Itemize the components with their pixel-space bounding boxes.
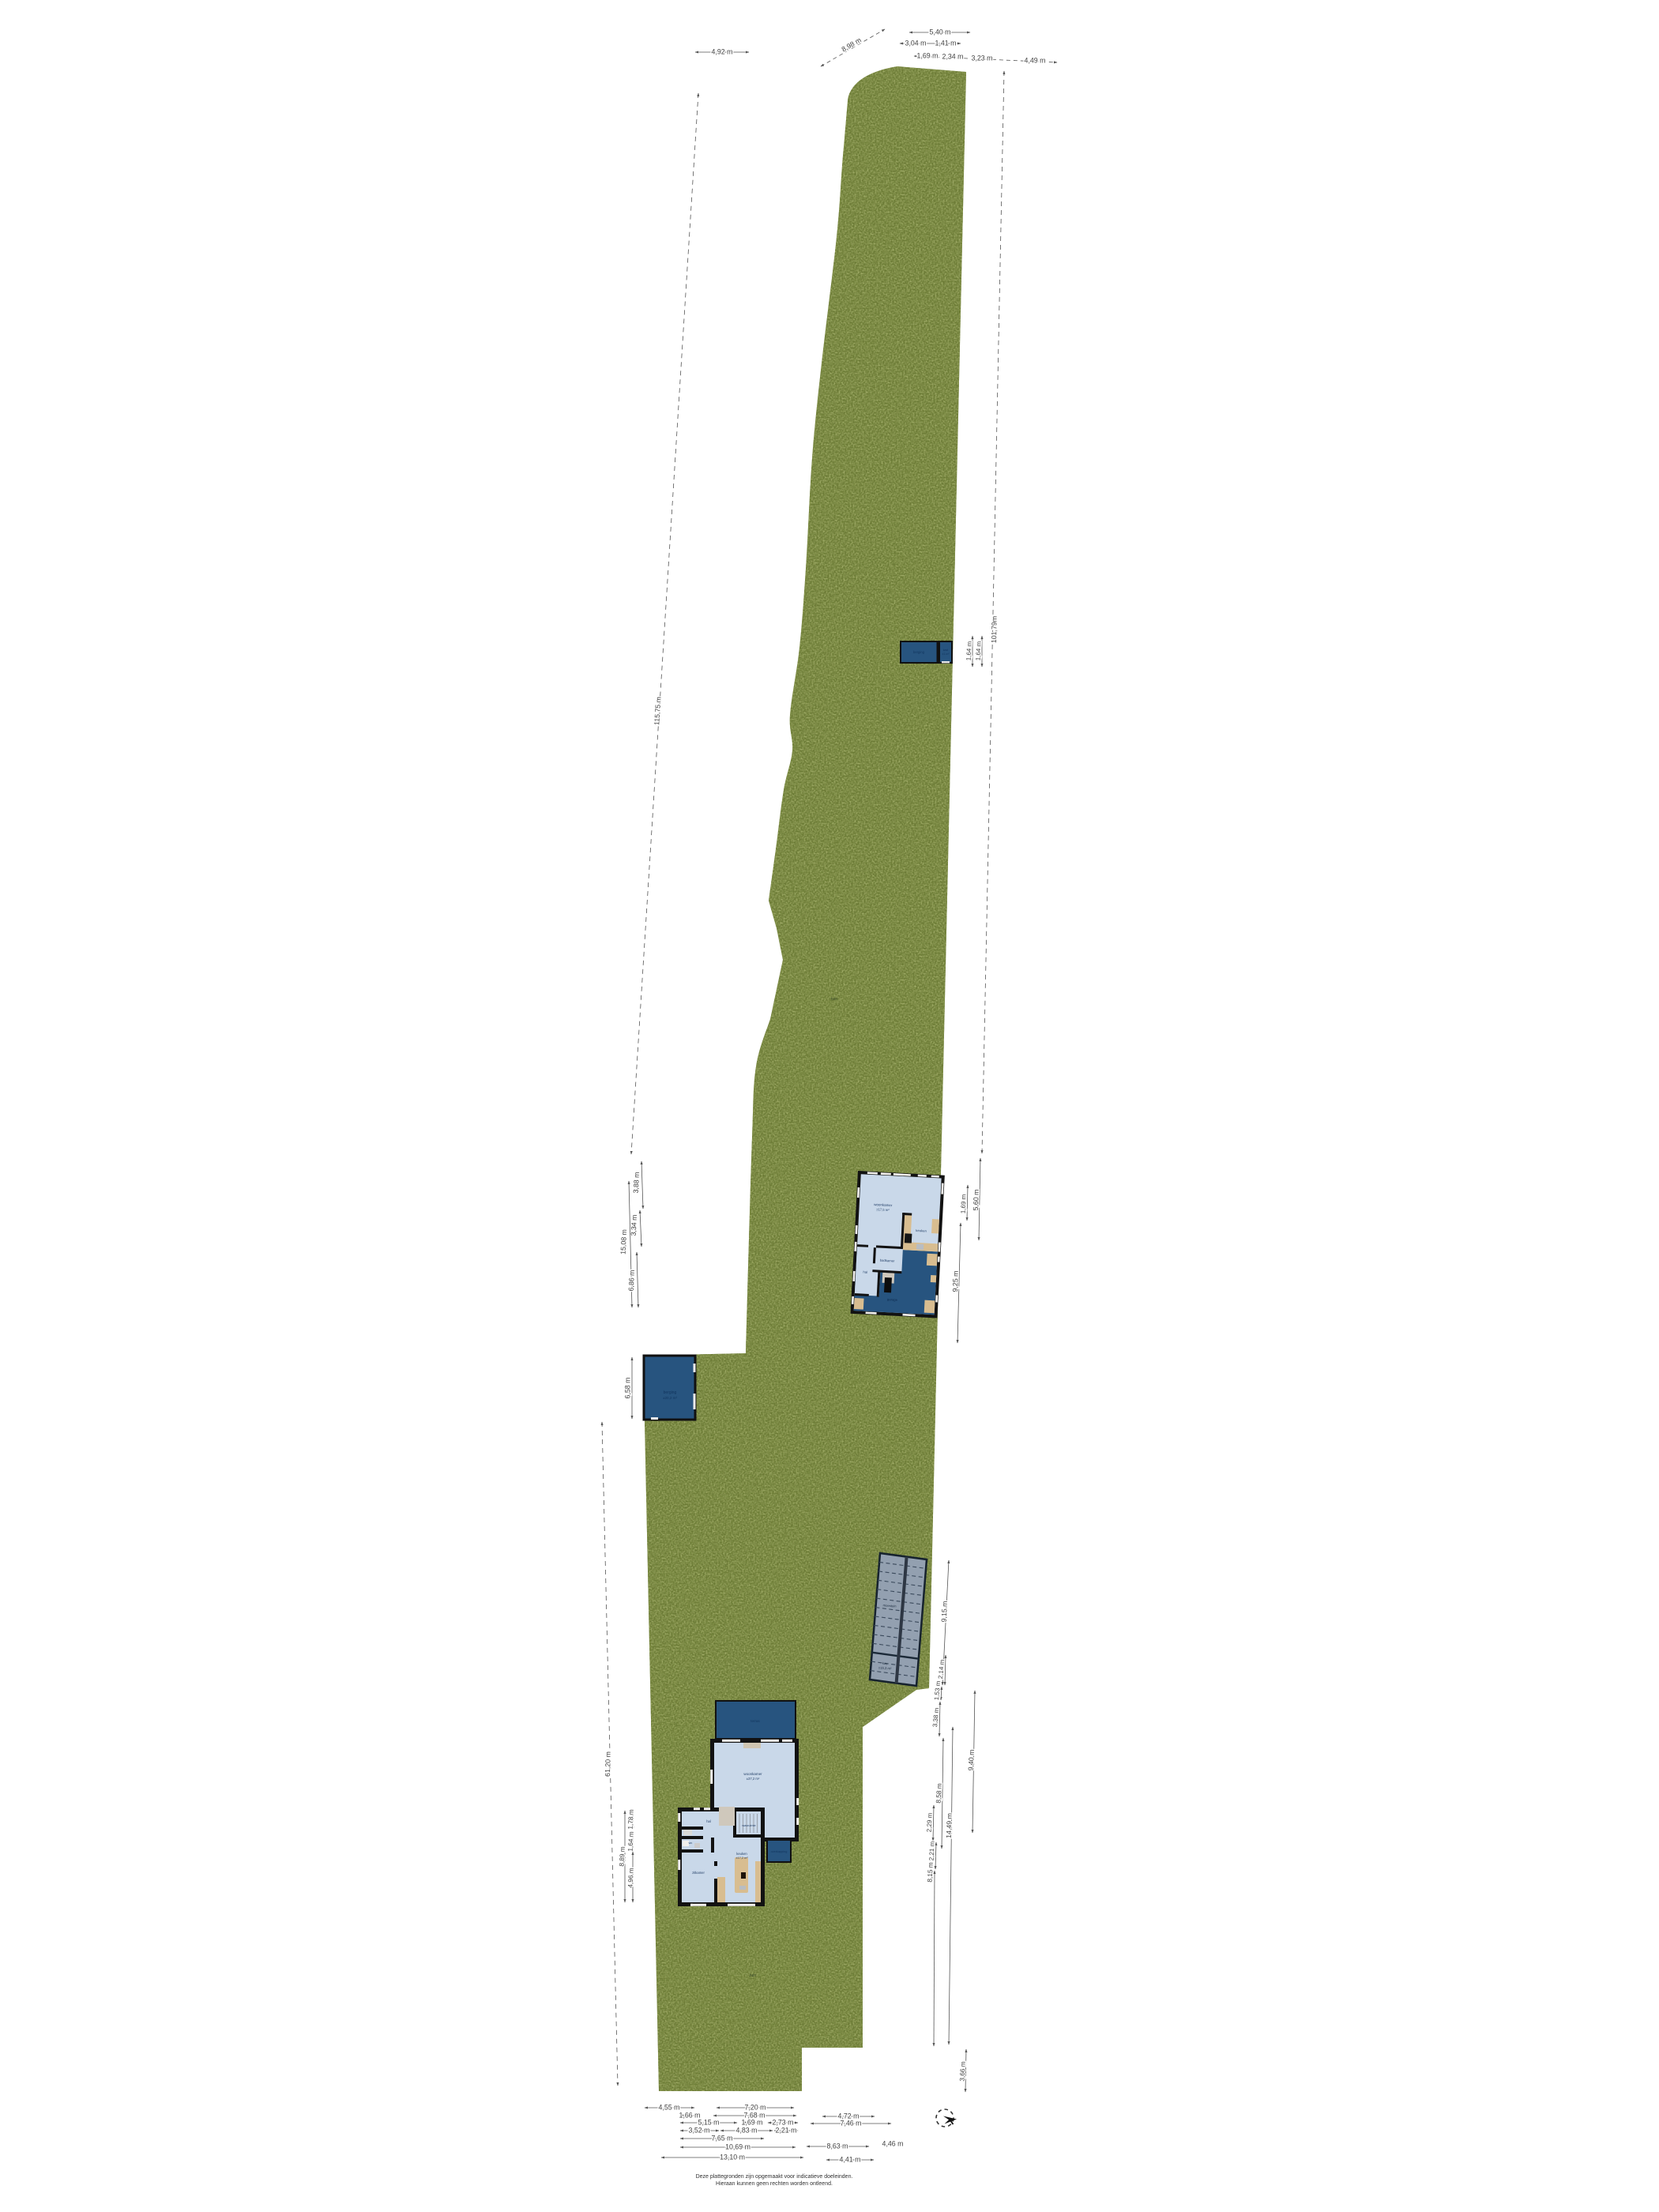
svg-text:Deze plattegronden zijn opgema: Deze plattegronden zijn opgemaakt voor i… (696, 2174, 853, 2180)
svg-text:±17,2 m²: ±17,2 m² (735, 1856, 748, 1860)
svg-text:2,29 m: 2,29 m (925, 1812, 933, 1832)
svg-text:±1 m²: ±1 m² (942, 653, 950, 656)
svg-text:2,34 m: 2,34 m (942, 52, 964, 60)
svg-text:wasruimte: wasruimte (742, 1824, 755, 1827)
svg-text:9,40 m: 9,40 m (967, 1749, 976, 1770)
svg-text:1,64 m: 1,64 m (626, 1831, 635, 1852)
svg-text:4,55 m: 4,55 m (659, 2103, 680, 2111)
svg-text:10,69 m: 10,69 m (725, 2142, 750, 2150)
svg-text:14,49 m: 14,49 m (945, 1813, 954, 1838)
svg-text:9,15 m: 9,15 m (940, 1601, 949, 1622)
svg-text:7,46 m: 7,46 m (841, 2119, 862, 2127)
svg-text:kas: kas (882, 1661, 888, 1665)
svg-text:berging: berging (913, 650, 925, 654)
svg-text:4,92 m: 4,92 m (712, 47, 733, 55)
svg-text:4,41 m: 4,41 m (840, 2155, 861, 2163)
svg-text:61,20 m: 61,20 m (604, 1751, 612, 1777)
svg-text:2,21 m: 2,21 m (927, 1841, 935, 1860)
svg-text:4,49 m: 4,49 m (1025, 56, 1046, 64)
svg-text:1,69 m: 1,69 m (742, 2118, 763, 2126)
svg-text:1,78 m: 1,78 m (626, 1809, 635, 1830)
svg-text:1,66 m: 1,66 m (679, 2111, 701, 2119)
svg-text:hal: hal (706, 1819, 711, 1823)
svg-text:Hieraan kunnen geen rechten wo: Hieraan kunnen geen rechten worden ontle… (716, 2181, 833, 2187)
svg-text:3,23 m: 3,23 m (972, 54, 993, 62)
svg-text:±20,2 m²: ±20,2 m² (663, 1396, 678, 1400)
svg-text:tuin: tuin (831, 997, 837, 1002)
svg-text:1,64 m: 1,64 m (965, 641, 972, 660)
svg-text:8,63 m: 8,63 m (827, 2142, 848, 2150)
svg-text:1,69 m: 1,69 m (960, 1194, 968, 1213)
svg-text:1,69 m: 1,69 m (917, 51, 939, 59)
svg-text:1,41 m: 1,41 m (935, 39, 957, 47)
svg-text:berging: berging (664, 1390, 677, 1395)
svg-text:badkamer: badkamer (880, 1258, 895, 1263)
svg-text:garage: garage (887, 1297, 898, 1302)
svg-text:1,64 m: 1,64 m (974, 641, 982, 660)
svg-text:4,83 m: 4,83 m (736, 2126, 758, 2134)
svg-text:15,08 m: 15,08 m (619, 1229, 629, 1255)
svg-text:5,40 m: 5,40 m (930, 28, 951, 36)
svg-text:2,73 m: 2,73 m (773, 2118, 794, 2126)
svg-text:3,34 m: 3,34 m (630, 1214, 638, 1236)
svg-text:5,60 m: 5,60 m (972, 1189, 980, 1210)
svg-text:±37,2 m²: ±37,2 m² (747, 1777, 760, 1781)
svg-text:3,66 m: 3,66 m (958, 2061, 967, 2082)
svg-text:keuken: keuken (916, 1228, 927, 1233)
svg-text:5,15 m: 5,15 m (698, 2118, 720, 2126)
svg-text:9,25 m: 9,25 m (951, 1270, 960, 1292)
svg-text:4,46 m: 4,46 m (882, 2139, 904, 2147)
svg-text:hal: hal (863, 1270, 867, 1274)
svg-text:4,96 m: 4,96 m (626, 1868, 635, 1888)
svg-text:2,21 m: 2,21 m (776, 2126, 797, 2134)
svg-text:8,89 m: 8,89 m (618, 1846, 626, 1867)
svg-text:wc: wc (689, 1841, 693, 1845)
svg-text:overkapping: overkapping (771, 1850, 788, 1853)
svg-text:8,58 m: 8,58 m (935, 1783, 943, 1804)
svg-text:3,04 m: 3,04 m (905, 39, 927, 47)
svg-text:3,52 m: 3,52 m (689, 2126, 710, 2134)
svg-text:zitkamer: zitkamer (692, 1871, 705, 1875)
svg-text:6,58 m: 6,58 m (623, 1378, 631, 1399)
svg-text:terras: terras (750, 1719, 760, 1723)
svg-text:3,88 m: 3,88 m (632, 1172, 641, 1193)
svg-text:13,10 m: 13,10 m (720, 2153, 745, 2161)
svg-text:woonkamer: woonkamer (743, 1772, 762, 1776)
svg-text:8,15 m: 8,15 m (926, 1862, 935, 1883)
svg-text:6,86 m: 6,86 m (627, 1270, 636, 1291)
svg-text:7,20 m: 7,20 m (745, 2103, 766, 2111)
svg-text:±17,5 m²: ±17,5 m² (876, 1207, 890, 1212)
svg-text:7,65 m: 7,65 m (712, 2134, 733, 2142)
svg-text:tuin: tuin (750, 1973, 756, 1978)
svg-text:kast: kast (943, 649, 949, 652)
svg-text:101,79m: 101,79m (990, 616, 999, 643)
